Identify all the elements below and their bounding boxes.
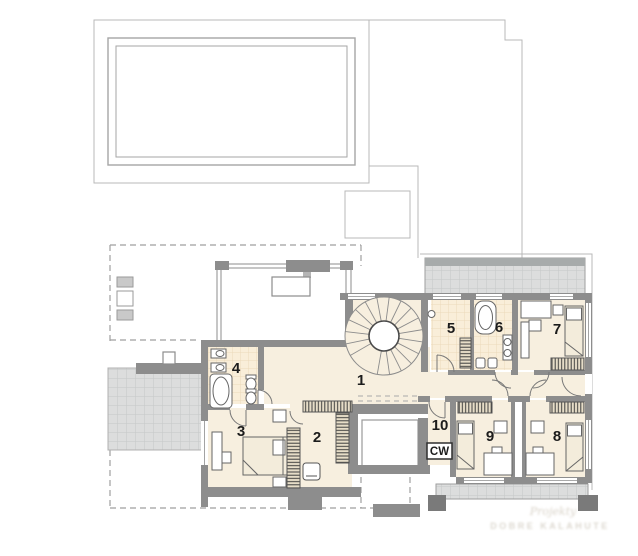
wardrobe (287, 428, 300, 488)
cabinet (553, 305, 563, 315)
bidet (246, 392, 256, 404)
chair (529, 320, 541, 331)
shelf (521, 322, 529, 358)
room-4-label: 4 (232, 360, 241, 377)
skylight-void (362, 420, 418, 466)
boundary-line-top (369, 20, 522, 258)
wardrobe (550, 402, 584, 413)
balcony-post (578, 495, 598, 511)
lower-roof-outline (345, 191, 410, 238)
chair (531, 421, 544, 433)
nightstand (273, 477, 286, 487)
wardrobe (551, 358, 584, 370)
chair (222, 452, 231, 463)
pillow (567, 308, 582, 320)
wardrobe (458, 402, 492, 413)
wardrobe (303, 401, 352, 412)
upper-terrace (425, 258, 585, 294)
room-3-label: 3 (237, 423, 245, 440)
spiral-staircase (345, 297, 423, 375)
corridor-floor (428, 372, 585, 398)
room-1-label: 1 (357, 372, 365, 389)
pillow (459, 423, 473, 434)
nightstand (273, 410, 286, 422)
bench (117, 277, 133, 287)
glass-walls (217, 264, 351, 340)
swimming-pool (108, 38, 355, 165)
room-8-label: 8 (553, 428, 561, 445)
desk (521, 301, 551, 318)
toilet (476, 358, 485, 368)
radiator (460, 338, 471, 368)
cw-box: CW (427, 443, 452, 459)
desk (484, 453, 512, 475)
desk (526, 453, 554, 475)
floor-plan: 1 2 3 4 5 6 7 8 9 10 CW Projekty DOBRE K… (0, 0, 638, 556)
desk (212, 432, 222, 470)
toilet (246, 378, 256, 390)
wardrobe (336, 413, 349, 463)
sink (428, 311, 435, 318)
chimney (163, 352, 175, 364)
room-10-label: 10 (432, 417, 449, 434)
room-7-label: 7 (553, 321, 561, 338)
boundary-line-step (369, 166, 418, 258)
bidet (488, 358, 497, 368)
floor-plan-page: 1 2 3 4 5 6 7 8 9 10 CW Projekty DOBRE K… (0, 0, 638, 556)
room-5-label: 5 (447, 320, 455, 337)
balcony-post (428, 495, 446, 511)
room-9-label: 9 (486, 428, 494, 445)
wall-stub (288, 497, 322, 510)
outdoor-furniture (117, 277, 133, 320)
wall-stub (373, 504, 420, 517)
table (117, 291, 133, 306)
cw-label: CW (430, 446, 449, 458)
pillow (568, 425, 582, 436)
fireplace (272, 260, 330, 296)
room-6-label: 6 (495, 319, 503, 336)
watermark-line2: DOBRE KALAHUTE (490, 521, 610, 531)
armchair (303, 463, 320, 480)
room-2-label: 2 (313, 429, 321, 446)
bench (117, 310, 133, 320)
terrace-wall (136, 363, 207, 374)
chair (494, 421, 507, 433)
watermark-line1: Projekty (529, 505, 577, 518)
